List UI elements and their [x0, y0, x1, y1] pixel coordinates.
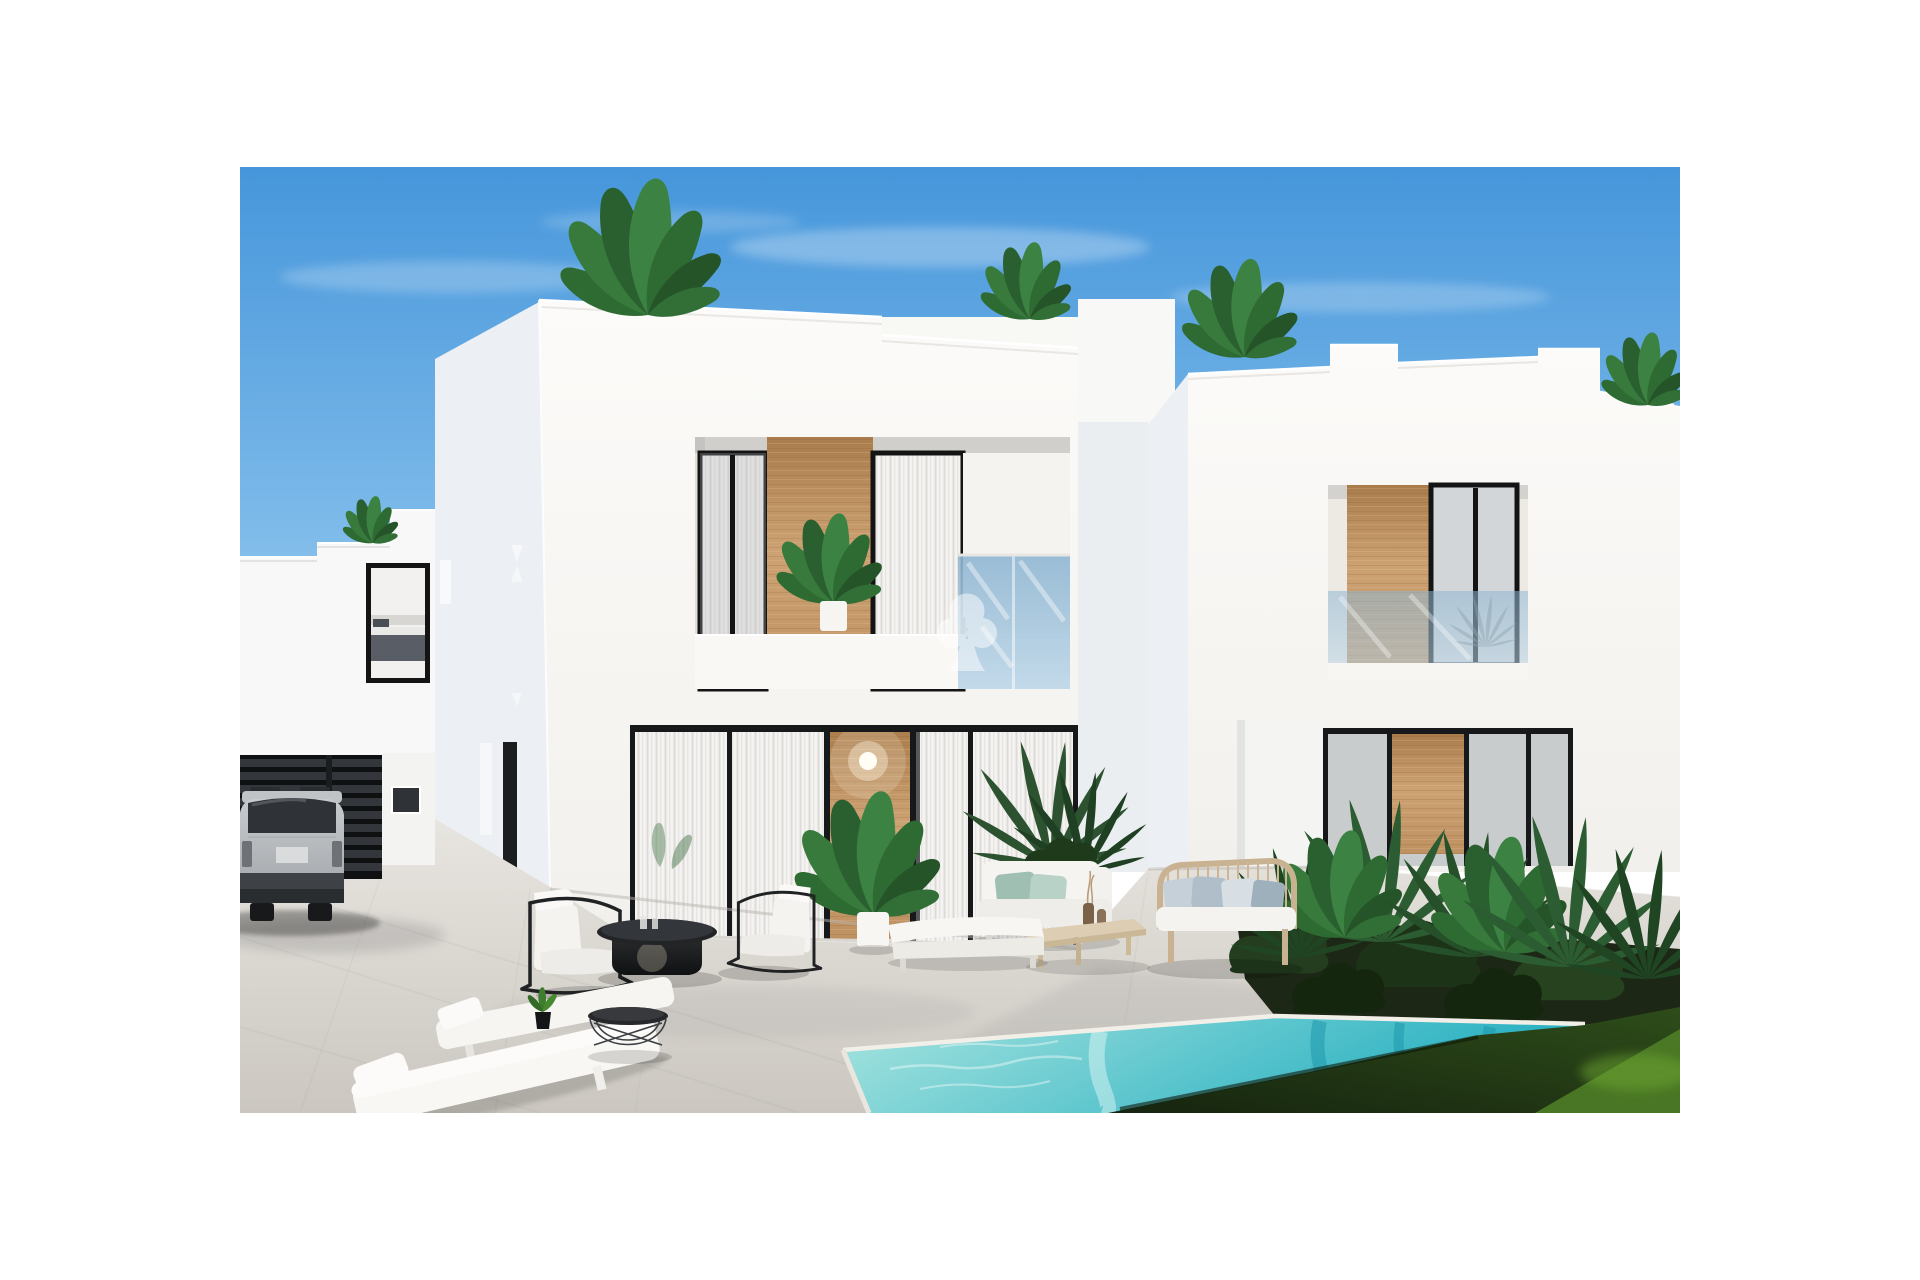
plant-pot-black	[535, 1012, 551, 1029]
slit-window	[480, 743, 492, 835]
bed-blanket	[371, 635, 425, 661]
wall-lamp	[859, 752, 877, 770]
sofa-seat	[1156, 907, 1296, 931]
plant-pot	[820, 601, 847, 631]
leg	[1126, 935, 1131, 955]
wood-grain	[1392, 734, 1464, 854]
glass	[640, 916, 647, 929]
villa-render-scene	[240, 167, 1680, 1113]
car-wheel	[250, 903, 274, 921]
leg	[1030, 955, 1036, 968]
backless-chaise	[888, 917, 1048, 972]
glass-balustrade	[1328, 591, 1528, 665]
roof-rail	[300, 787, 330, 791]
taillight	[242, 841, 252, 867]
entry-window	[392, 787, 420, 813]
car-wheel	[308, 903, 332, 921]
leg	[900, 959, 906, 972]
table-light-glow	[637, 942, 667, 972]
table-top-sheen	[592, 1007, 664, 1021]
leg	[1076, 943, 1081, 965]
shadow	[588, 1050, 672, 1064]
photo-frame	[0, 0, 1920, 1280]
main-villa-side-wall	[435, 302, 550, 889]
slit-window	[440, 560, 451, 604]
glass	[652, 918, 658, 929]
vase	[1083, 903, 1094, 927]
car-bumper-lower	[240, 889, 344, 903]
balcony-sill	[1328, 663, 1528, 679]
glass-seam	[1012, 555, 1015, 689]
plant-pot	[857, 912, 889, 947]
license-plate	[276, 847, 308, 863]
pot-shadow	[849, 945, 897, 955]
side-door	[503, 742, 517, 880]
cloud	[730, 227, 1150, 267]
leg	[1168, 931, 1174, 963]
car-bumper	[240, 873, 344, 891]
roof-rail	[250, 787, 280, 791]
pillow	[1191, 876, 1227, 910]
taillight	[332, 841, 342, 867]
right-villa-side-wall	[1148, 374, 1188, 872]
leg	[1282, 929, 1288, 965]
